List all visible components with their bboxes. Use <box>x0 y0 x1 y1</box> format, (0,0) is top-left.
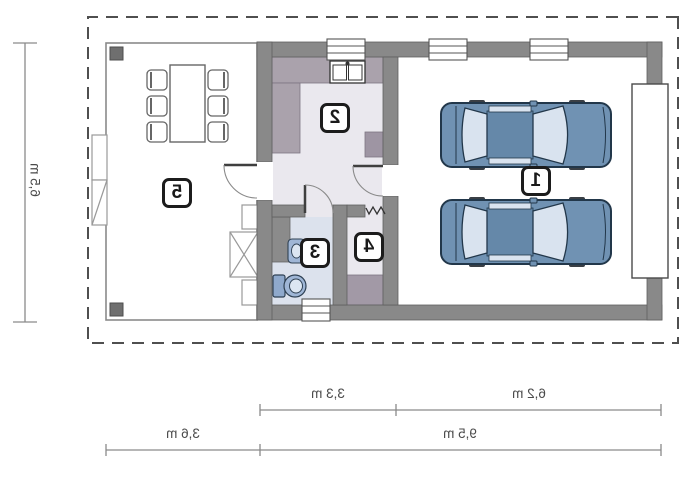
room-label-bathroom: 3 <box>300 238 330 268</box>
window-icon <box>429 39 467 60</box>
dim-terrace-width: 3,6 m <box>166 426 200 441</box>
garage-door <box>632 84 668 278</box>
chair-icon <box>208 96 228 116</box>
dim-total-width: 9,5 m <box>443 426 477 441</box>
room-label-terrace: 5 <box>162 178 192 208</box>
wall-bath-hall <box>333 205 347 305</box>
car-icon <box>441 197 611 267</box>
window-icon <box>327 39 365 60</box>
car-icon <box>441 100 611 170</box>
wall-divider-upper <box>383 57 398 165</box>
dining-table-icon <box>147 65 228 142</box>
chair-icon <box>147 122 167 142</box>
toilet-icon <box>273 275 306 297</box>
window-icon <box>530 39 568 60</box>
chair-icon <box>147 96 167 116</box>
window-icon <box>302 299 330 321</box>
wall-divider-lower <box>383 196 398 305</box>
room-label-hall: 4 <box>354 232 384 262</box>
chair-icon <box>208 122 228 142</box>
room-number: 3 <box>310 242 321 264</box>
terrace-post <box>110 47 123 60</box>
kitchen-sink-icon <box>330 61 365 83</box>
floor-plan-canvas: 1 2 3 4 5 3,3 m 6,2 m 3,6 m 9,5 m 6,5 m <box>0 0 700 477</box>
room-number: 1 <box>531 170 542 192</box>
room-number: 4 <box>364 236 375 258</box>
dim-building-depth: 6,5 m <box>28 163 43 197</box>
chair-icon <box>208 70 228 90</box>
hall-cabinet <box>345 275 383 305</box>
room-label-kitchen: 2 <box>320 103 350 133</box>
kitchen-cabinet <box>365 132 383 157</box>
wall-stub <box>347 205 365 217</box>
steps-icon <box>92 135 107 225</box>
room-label-garage: 1 <box>521 166 551 196</box>
duct-block <box>272 217 290 262</box>
terrace-post <box>110 303 123 316</box>
dim-house-section-width: 3,3 m <box>311 386 345 401</box>
wall-terrace-side-lower <box>257 200 272 320</box>
chair-icon <box>147 70 167 90</box>
wall-bath-top <box>272 205 305 217</box>
room-number: 5 <box>172 182 183 204</box>
dim-garage-section-width: 6,2 m <box>512 386 546 401</box>
floor-plan-drawing <box>0 0 700 477</box>
table-top <box>170 65 205 142</box>
room-number: 2 <box>330 107 341 129</box>
wall-terrace-side-upper <box>257 42 272 162</box>
